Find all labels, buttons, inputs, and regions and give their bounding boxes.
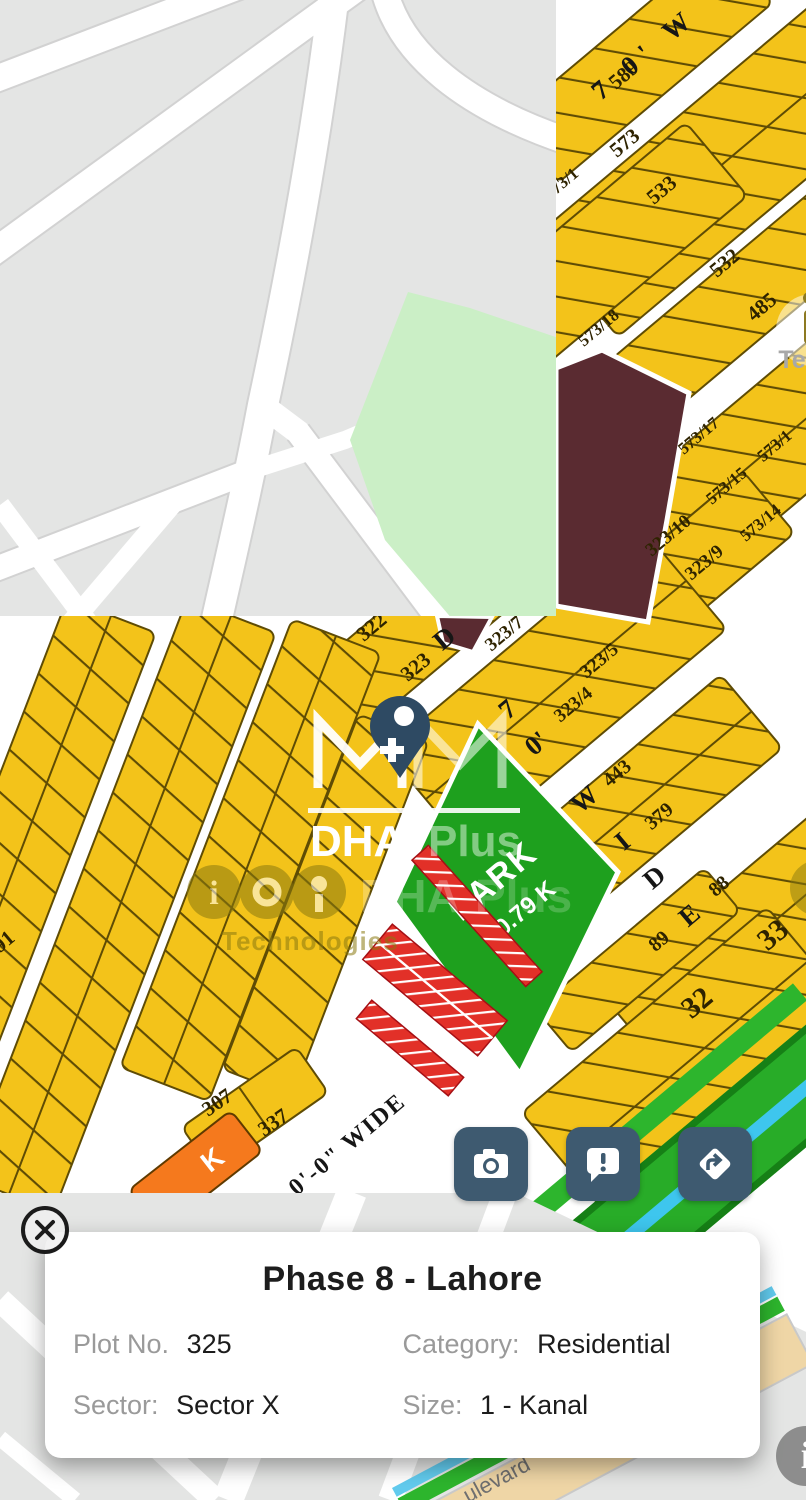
size-field: Size: 1 - Kanal — [403, 1390, 733, 1421]
watermark-dha-echo: DHA — [360, 870, 460, 922]
close-icon — [33, 1218, 57, 1242]
card-row-2: Sector: Sector X Size: 1 - Kanal — [45, 1390, 760, 1421]
watermark-dha-text: DHA. — [310, 817, 418, 866]
sector-label: Sector: — [73, 1390, 159, 1420]
info-icon: i — [801, 1434, 806, 1478]
report-chat-icon — [583, 1144, 623, 1184]
camera-button[interactable] — [454, 1127, 528, 1201]
directions-icon — [693, 1142, 737, 1186]
plot-no-label: Plot No. — [73, 1329, 169, 1359]
sector-value: Sector X — [176, 1390, 280, 1420]
category-value: Residential — [537, 1329, 671, 1359]
category-field: Category: Residential — [403, 1329, 733, 1360]
card-title: Phase 8 - Lahore — [45, 1260, 760, 1299]
size-value: 1 - Kanal — [480, 1390, 588, 1420]
camera-icon — [471, 1144, 511, 1184]
plot-no-field: Plot No. 325 — [73, 1329, 403, 1360]
plot-info-card: Phase 8 - Lahore Plot No. 325 Category: … — [45, 1232, 760, 1458]
close-card-button[interactable] — [21, 1206, 69, 1254]
watermark-plus-text: Plus — [428, 817, 521, 866]
size-label: Size: — [403, 1390, 463, 1420]
icn-i-glyph: i — [209, 875, 218, 912]
directions-button[interactable] — [678, 1127, 752, 1201]
sector-field: Sector: Sector X — [73, 1390, 403, 1421]
card-row-1: Plot No. 325 Category: Residential — [45, 1329, 760, 1360]
watermark-te-fragment: Te — [778, 346, 805, 374]
category-label: Category: — [403, 1329, 520, 1359]
watermark-plus-echo: Plus — [475, 870, 572, 922]
app-screen: PARK 10.79 K K 589 573 53 — [0, 0, 806, 1500]
watermark-technologies-text: Technologies — [221, 926, 399, 956]
plot-no-value: 325 — [187, 1329, 232, 1359]
report-button[interactable] — [566, 1127, 640, 1201]
